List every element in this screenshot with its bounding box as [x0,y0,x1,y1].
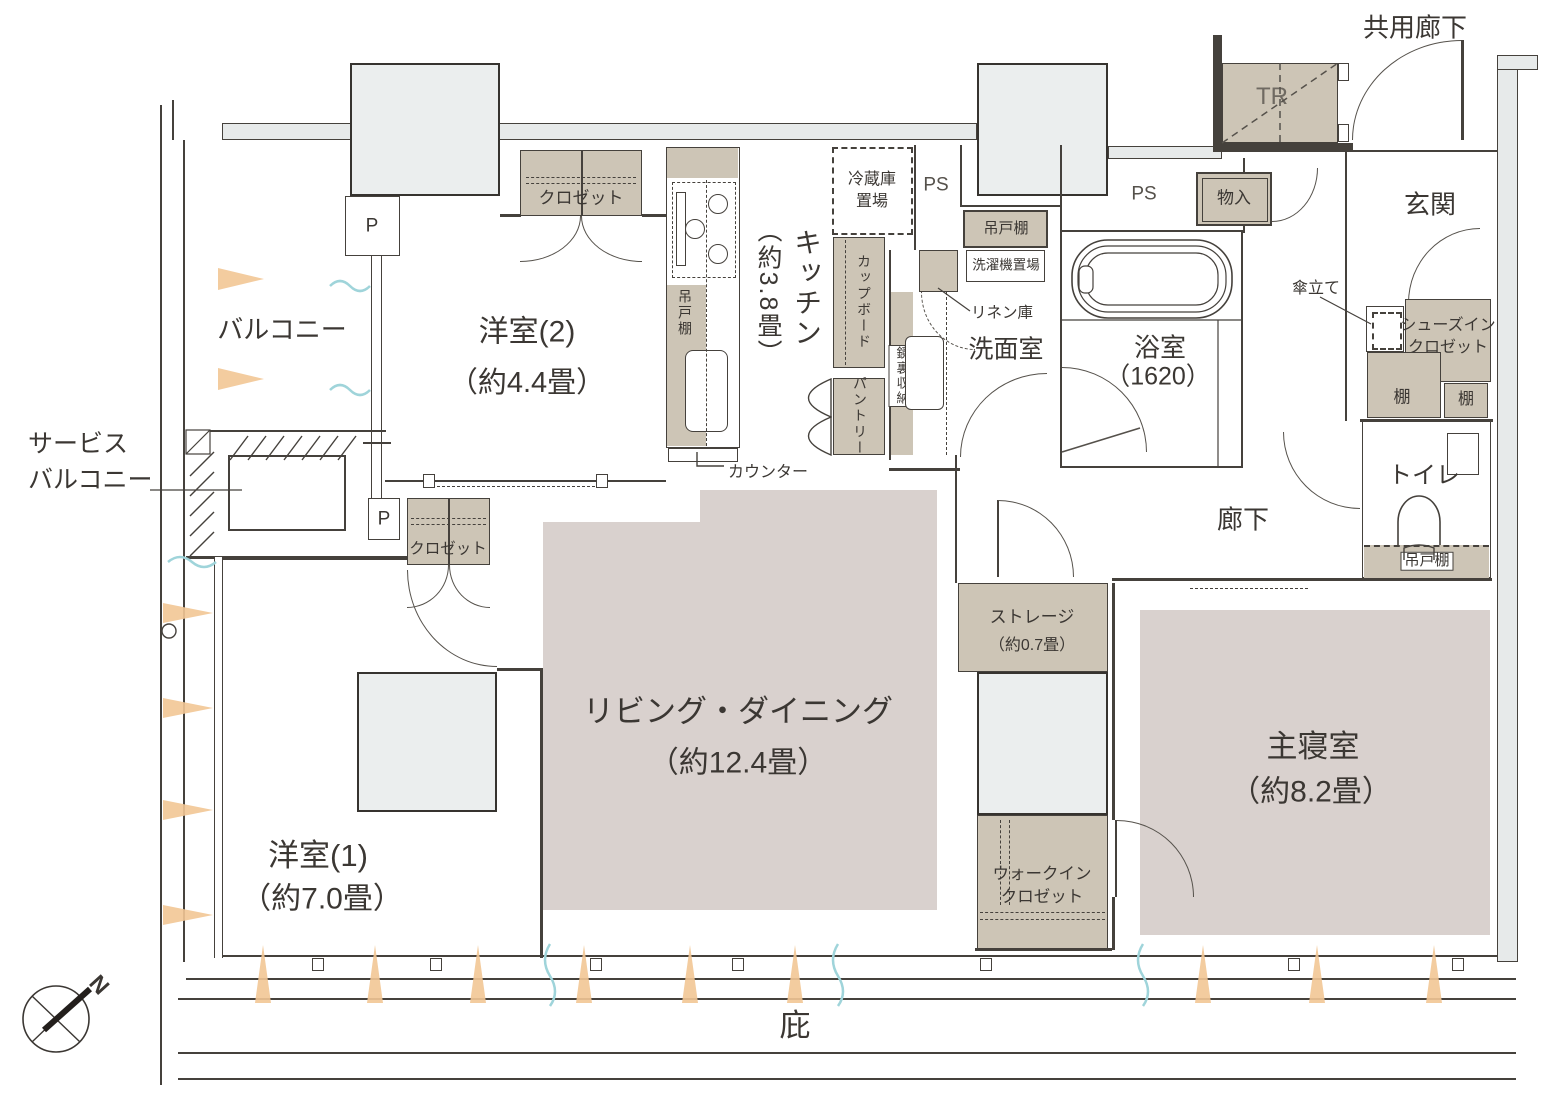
western-room-2-label: 洋室(2) [479,316,576,349]
toilet-label: トイレ [1388,463,1460,489]
wall [1060,145,1062,235]
toilet-door-arc [1283,432,1360,509]
door-post [1338,63,1349,81]
sun-arrow [470,945,486,1003]
corridor-south-wall [1112,578,1492,581]
compass-north-label: N [84,970,114,999]
window-mullion [1452,958,1464,971]
eaves-line-2 [178,1052,1516,1054]
bedroom-west-wall [1112,583,1115,820]
kitchen-counter-shade-top [667,148,738,178]
sun-arrow [163,603,213,623]
closet-w2-label: クロゼット [539,190,624,209]
wic-label-1: ウォークイン [993,865,1092,883]
stove-burner [708,244,728,264]
master-bedroom-size: （約8.2畳） [1230,776,1392,809]
service-balcony-label-1: サービス [28,424,128,460]
sun-arrow [218,268,264,290]
right-wall-corner [1497,55,1538,70]
sun-arrow [163,905,213,925]
door-post [423,474,435,488]
column-pillar-3 [357,672,497,812]
living-dining-label: リビング・ダイニング [583,695,893,729]
umbrella-stand-dashed [1372,312,1402,350]
kitchen-hanging-shelf-label: 吊戸棚 [675,289,695,337]
storage-room [958,583,1108,672]
refrigerator-label-1: 冷蔵庫 [848,171,896,189]
toilet-hanging-shelf-label: 吊戸棚 [1400,552,1453,571]
shelf-left [1367,352,1441,418]
door-post [596,474,608,488]
wic-bottom-wall [975,948,1112,951]
shoes-in-closet-label-1: シューズイン [1400,317,1495,335]
entrance-door-leaf [1461,40,1464,140]
hall-cabinet-door-arc [1272,168,1318,222]
service-balcony-slab [228,455,346,531]
washroom-top-wall [960,205,1060,207]
shelf-left-label: 棚 [1394,389,1411,408]
wall [914,145,916,250]
genkan-inner-door-arc [1408,228,1480,303]
outer-left-tick [172,100,174,140]
vanity-dash-line [946,292,947,455]
outer-left-line-2 [183,140,185,962]
window-mullion [980,958,992,971]
pantry-label: パントリー [850,376,870,456]
western2-sliding-door [432,486,600,487]
balcony-window-sash [363,442,391,444]
column-pillar-1 [350,63,500,196]
window-mullion [430,958,442,971]
washroom-door-arc [960,373,1047,457]
western1-left-window [214,557,223,958]
washer-space-label: 洗濯機置場 [972,259,1040,274]
refrigerator-label-2: 置場 [856,193,888,211]
western1-east-jog [497,668,543,671]
sun-arrow [367,945,383,1003]
kitchen-size-label: （約3.8畳） [750,218,786,367]
linen-cabinet-label: リネン庫 [971,304,1033,321]
storage-label: ストレージ [990,609,1075,628]
sun-arrow [218,368,264,390]
hall-cabinet-label: 物入 [1217,190,1251,209]
refrigerator-space [832,147,913,235]
washbasin [905,336,944,410]
top-wall-band [222,123,977,140]
shelf-right-label: 棚 [1458,391,1474,409]
pipe-2-label: P [378,510,391,531]
washroom-hanging-shelf-label: 吊戸棚 [983,221,1028,238]
column-pillar-2 [977,63,1108,196]
kitchen-label: キッチン [786,228,826,348]
outer-left-line [160,105,162,1085]
master-bedroom-label: 主寝室 [1267,730,1360,764]
western1-east-wall [540,668,543,958]
window-mullion [590,958,602,971]
living-dining-size: （約12.4畳） [649,747,827,780]
counter-dash-line [706,180,707,446]
door-post [1338,124,1349,142]
tr-bottom-wall [1213,143,1353,152]
right-wall-band [1497,55,1518,962]
ps-wall [960,145,962,205]
window-mullion [312,958,324,971]
sun-arrow [255,945,271,1003]
storage-door-arc [998,500,1074,577]
entrance-door-arc [1352,40,1462,140]
closet-w1-label: クロゼット [409,540,487,557]
stove-burner [685,219,705,239]
tr-left-wall [1213,35,1222,150]
pipe-1-label: P [366,217,379,238]
cupboard-label: カップボード [854,254,874,350]
window-mullion [1288,958,1300,971]
western1-top-wall [220,557,407,560]
eaves-label: 庇 [780,1009,811,1043]
sun-arrow [682,945,698,1003]
sun-arrow [163,800,213,820]
top-wall-band-right [1108,146,1222,159]
entrance-label: 玄関 [1404,191,1456,220]
common-corridor-label: 共用廊下 [1363,14,1467,43]
service-balcony-label-2: バルコニー [28,460,153,496]
wall-stub [642,214,667,217]
floor-plan: 庇 TR 共用廊下 バルコニー P P サービス バルコニー 洋室(2) （約4… [0,0,1557,1110]
window-mullion [732,958,744,971]
window-sill-line-1 [222,955,1507,957]
entrance-threshold [1349,150,1497,152]
storage-size-label: （約0.7畳） [989,637,1075,655]
cupboard-dash [845,240,846,365]
bedroom-sliding-dash [1190,588,1308,589]
ps-2-label: PS [1131,185,1156,206]
wic-dash-h [980,919,1105,920]
sun-arrow [1426,945,1442,1003]
western-room-1-size: （約7.0畳） [241,883,403,916]
eaves-line-3 [178,1078,1516,1080]
bathroom-size-label: （1620） [1105,363,1211,391]
sun-arrow [787,945,803,1003]
wall-stub [500,214,521,217]
compass-icon [23,986,90,1052]
washroom-bottom-wall [889,468,960,471]
corridor-label: 廊下 [1217,506,1269,535]
service-balcony-top [186,430,386,432]
column-pillar-4 [977,672,1108,815]
wic-dash-h [980,912,1105,913]
living-corridor-wall [955,455,957,583]
counter-label: カウンター [728,458,808,482]
washroom-label: 洗面室 [968,336,1043,364]
closet-w2-door-arc [581,216,642,262]
genkan-step-line [1345,152,1347,421]
wic-label-2: クロゼット [1001,888,1084,906]
bathroom-label: 浴室 [1134,334,1186,363]
sun-arrow [163,698,213,718]
bedroom-west-wall [1112,897,1115,950]
western-room-1-label: 洋室(1) [268,839,368,873]
closet-w2-door-arc [520,216,581,262]
western-room-2-size: （約4.4畳） [449,368,605,400]
sun-arrow [1195,945,1211,1003]
sun-arrow [1309,945,1325,1003]
sun-arrow [576,945,592,1003]
trunk-room-label: TR [1256,84,1288,110]
balcony-label: バルコニー [217,316,346,345]
linen-cabinet [919,250,958,292]
umbrella-stand-label: 傘立て [1292,280,1340,298]
stove-burner [708,194,728,214]
ps-1-label: PS [923,176,948,197]
